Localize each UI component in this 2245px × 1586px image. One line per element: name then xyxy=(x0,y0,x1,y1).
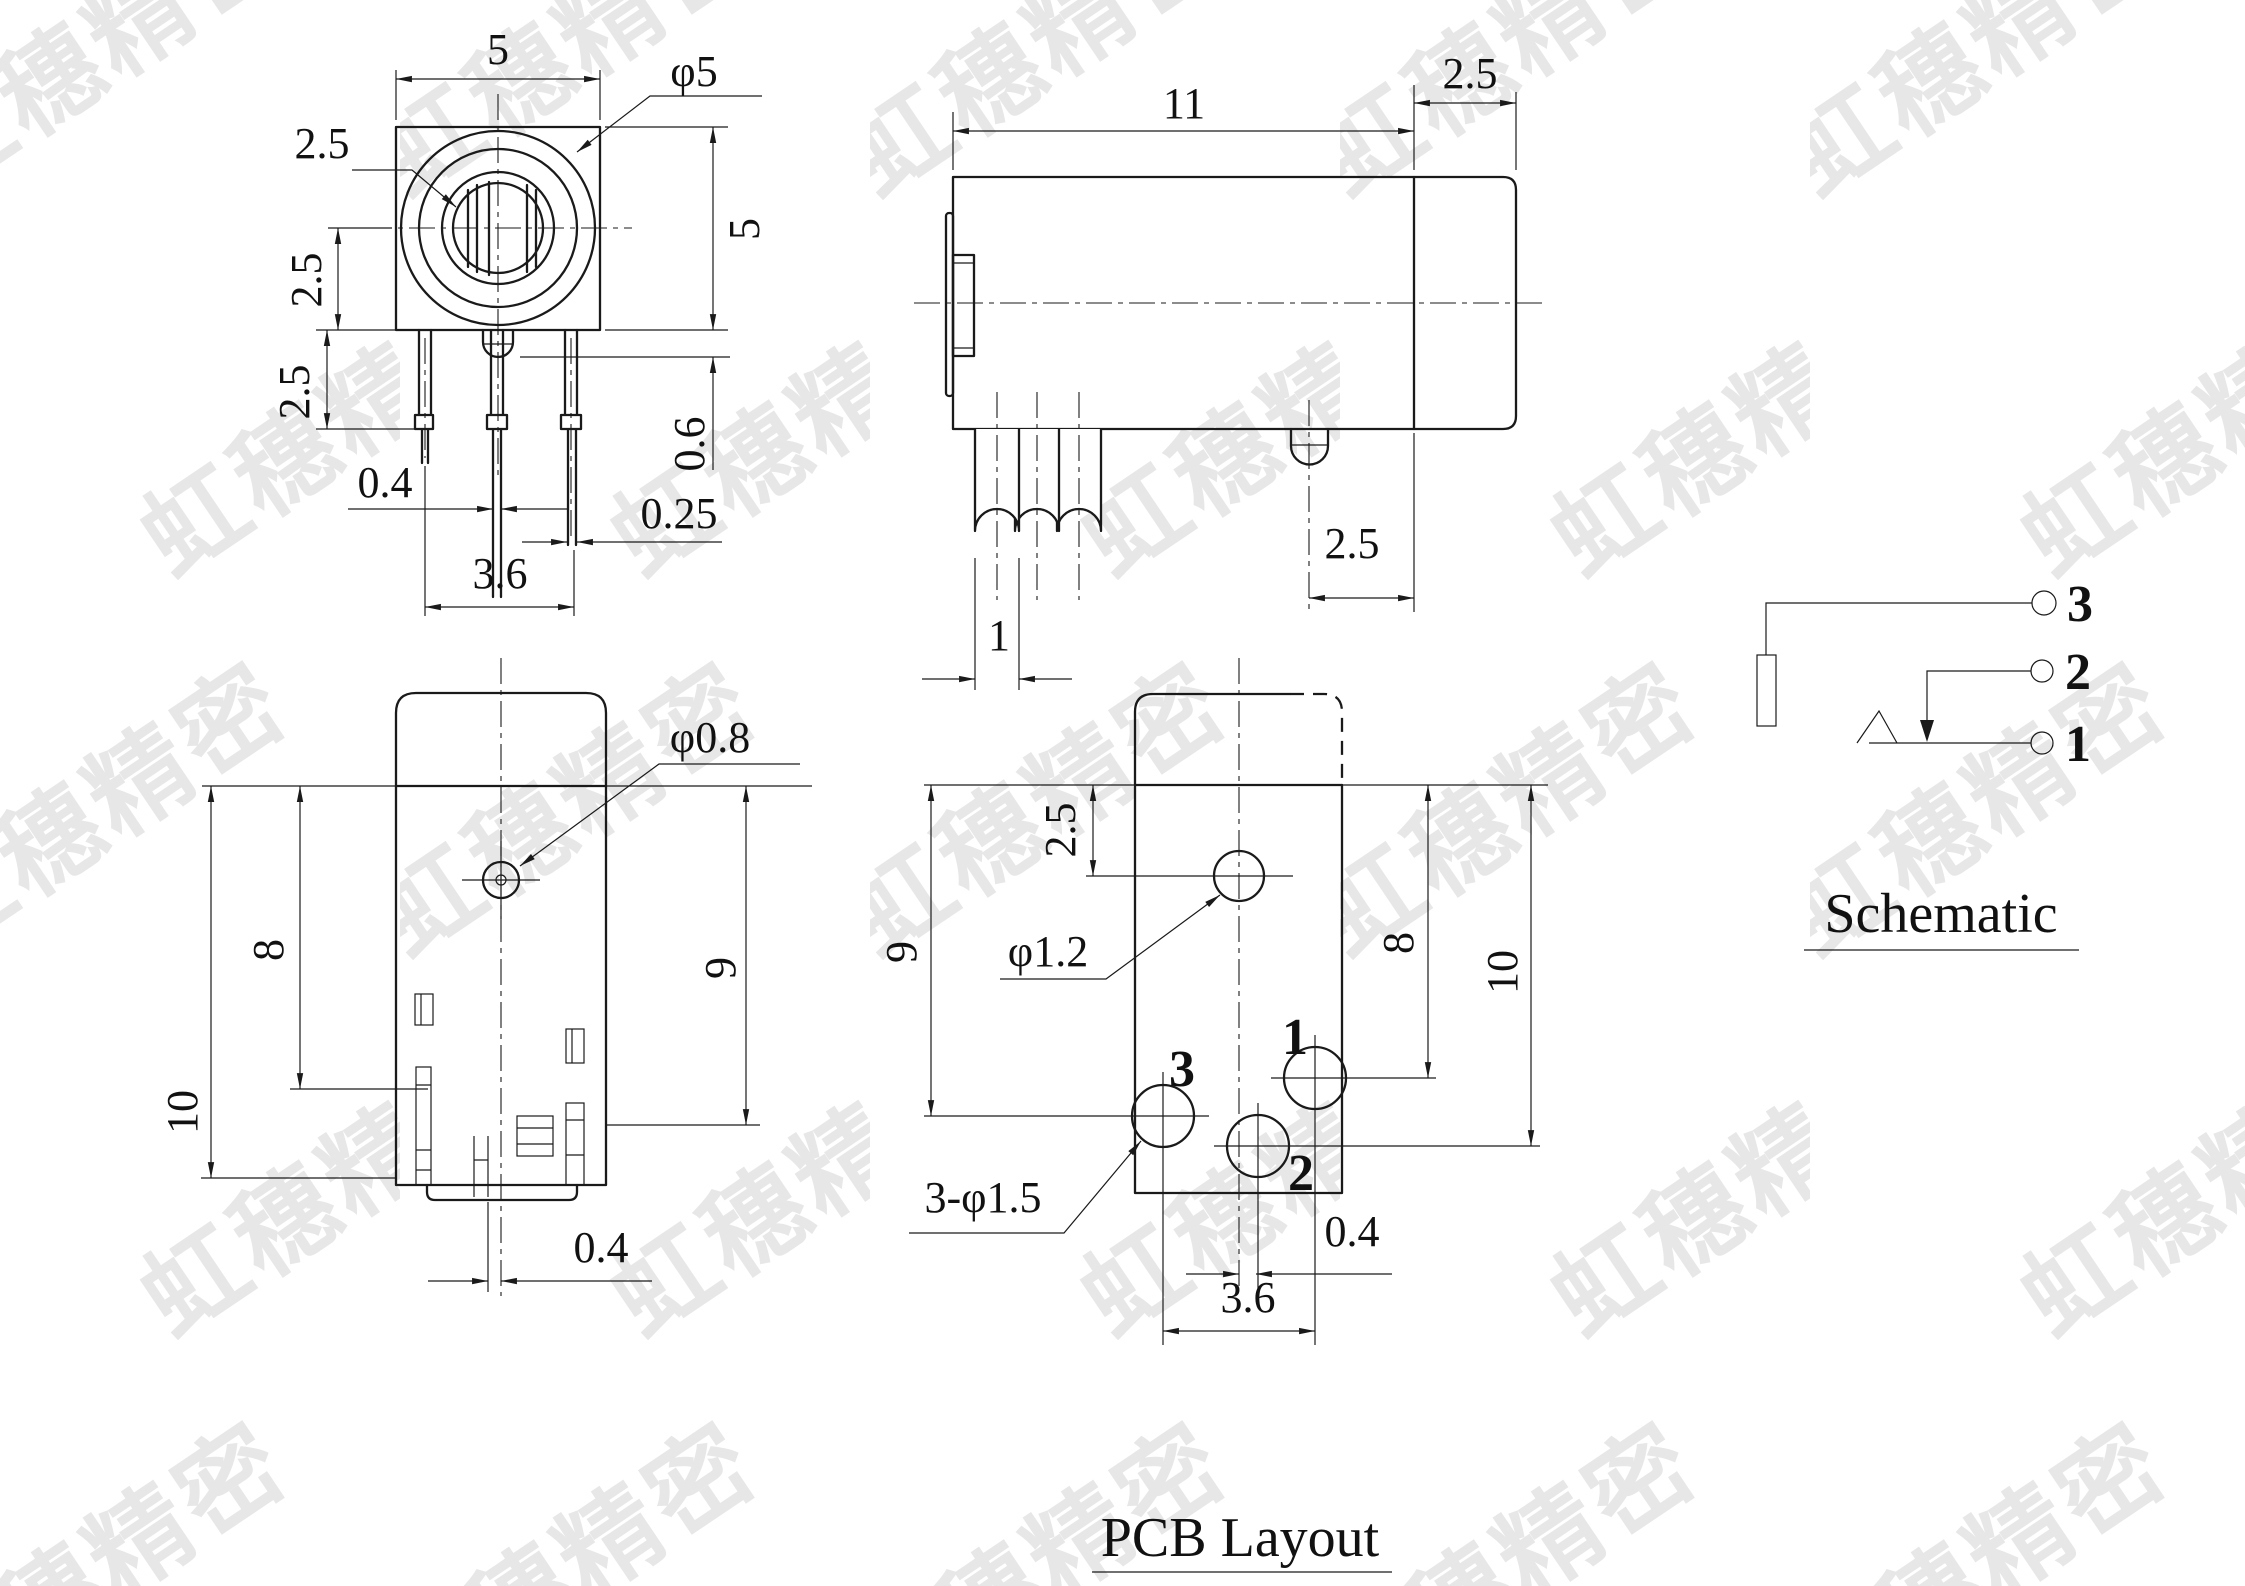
pcb-pad-label-1: 1 xyxy=(1282,1009,1308,1066)
dim-label-front-height: 5 xyxy=(720,218,769,240)
watermark-layer xyxy=(0,0,2245,1586)
dim-label-front-inner-dia: 2.5 xyxy=(295,119,350,168)
dim-label-front-center-bottom: 2.5 xyxy=(282,253,331,308)
dim-label-front-width: 5 xyxy=(487,25,509,74)
dim-label-bottom-right: 9 xyxy=(696,957,745,979)
dim-label-pcb-pad2-x: 0.4 xyxy=(1325,1207,1380,1256)
dim-label-front-pin-span: 3.6 xyxy=(473,549,528,598)
dim-label-pcb-pitch: 3.6 xyxy=(1221,1273,1276,1322)
pcb-pad-label-2: 2 xyxy=(1288,1145,1314,1202)
dim-label-bottom-tab: 0.4 xyxy=(574,1223,629,1272)
phone-jack-drawing: 虹穗精密 虹穗精密 xyxy=(0,0,2245,1586)
dim-label-side-length: 11 xyxy=(1163,79,1205,128)
dim-label-front-boss: 0.6 xyxy=(665,417,714,472)
dim-label-side-barrel: 2.5 xyxy=(1443,49,1498,98)
schematic-label-3: 3 xyxy=(2067,576,2093,633)
dim-label-pcb-pad2-y: 10 xyxy=(1478,950,1527,994)
schematic-label-2: 2 xyxy=(2065,644,2091,701)
pcb-pad-label-3: 3 xyxy=(1169,1041,1195,1098)
dim-label-front-pin-thk: 0.25 xyxy=(641,489,718,538)
dim-label-side-pin-width: 1 xyxy=(988,611,1010,660)
schematic-label-1: 1 xyxy=(2065,716,2091,773)
dim-label-pcb-pads-dia: 3-φ1.5 xyxy=(924,1173,1041,1222)
dim-label-bottom-overall: 10 xyxy=(158,1090,207,1134)
pcb-view-title: PCB Layout xyxy=(1101,1507,1380,1569)
engineering-drawing-sheet: 虹穗精密 虹穗精密 xyxy=(0,0,2245,1586)
dim-label-pcb-hole-dia: φ1.2 xyxy=(1008,927,1088,976)
dim-label-pcb-pad1-y: 8 xyxy=(1374,932,1423,954)
dim-label-pcb-pad3-y: 9 xyxy=(877,941,926,963)
dim-label-front-shoulder: 2.5 xyxy=(270,365,319,420)
dim-label-bottom-slot: 8 xyxy=(244,939,293,961)
dim-label-side-boss-offset: 2.5 xyxy=(1325,519,1380,568)
dim-label-front-outer-dia: φ5 xyxy=(670,47,717,96)
schematic-view-title: Schematic xyxy=(1824,883,2057,945)
dim-label-front-pin-width: 0.4 xyxy=(358,458,413,507)
dim-label-bottom-hole-dia: φ0.8 xyxy=(670,713,750,762)
dim-label-pcb-hole-offset: 2.5 xyxy=(1036,803,1085,858)
